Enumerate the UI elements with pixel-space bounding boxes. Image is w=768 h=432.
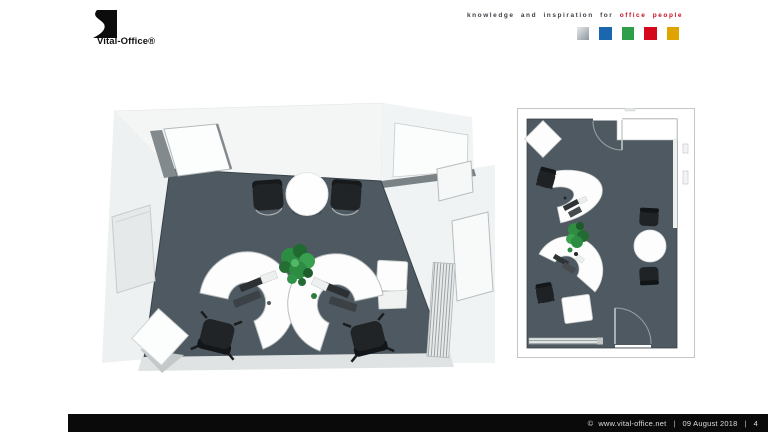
- footer-separator-2: |: [744, 419, 746, 428]
- storage-cube: [376, 260, 408, 309]
- tagline-normal: knowledge and inspiration for: [467, 12, 613, 19]
- red-square: [644, 27, 657, 40]
- plan-wall-tick-top: [625, 108, 635, 111]
- silver-square: [577, 27, 590, 40]
- desk-plant-small: [311, 293, 317, 299]
- plan-side-chair-top: [639, 208, 659, 227]
- presentation-slide: Vital-Office® knowledge and inspiration …: [0, 0, 768, 432]
- footer-separator-1: |: [673, 419, 675, 428]
- blue-square: [599, 27, 612, 40]
- plan-side-chair-bottom: [639, 267, 659, 286]
- plan-storage-cube: [561, 294, 592, 324]
- tagline-highlight: office people: [620, 12, 683, 19]
- plan-handle-1: [683, 144, 688, 153]
- window: [452, 212, 493, 301]
- footer-page-number: 4: [754, 419, 758, 428]
- logo-mark-icon: [86, 10, 117, 38]
- plan-window-sill: [673, 140, 677, 228]
- floor-plan-view: [517, 108, 695, 358]
- plan-round-table: [634, 230, 666, 262]
- entrance-door-3d: [150, 124, 231, 178]
- whiteboard: [112, 205, 155, 293]
- gold-square: [667, 27, 680, 40]
- green-square: [622, 27, 635, 40]
- round-table-3d: [286, 173, 328, 216]
- tagline: knowledge and inspiration for office peo…: [467, 12, 683, 19]
- plan-alcove: [617, 119, 677, 140]
- logo-text: Vital-Office®: [97, 36, 155, 47]
- footer-date: 09 August 2018: [683, 419, 738, 428]
- plan-desk-plant: [568, 248, 573, 253]
- footer-bar: © www.vital-office.net | 09 August 2018 …: [68, 414, 768, 432]
- room-3d-view: [100, 95, 495, 385]
- vital-office-logo: Vital-Office®: [86, 10, 156, 50]
- brand-palette: [577, 27, 680, 40]
- footer-site: www.vital-office.net: [598, 419, 666, 428]
- footer-copyright: ©: [588, 419, 594, 428]
- plan-radiator: [529, 338, 603, 345]
- plan-handle-2: [683, 171, 688, 184]
